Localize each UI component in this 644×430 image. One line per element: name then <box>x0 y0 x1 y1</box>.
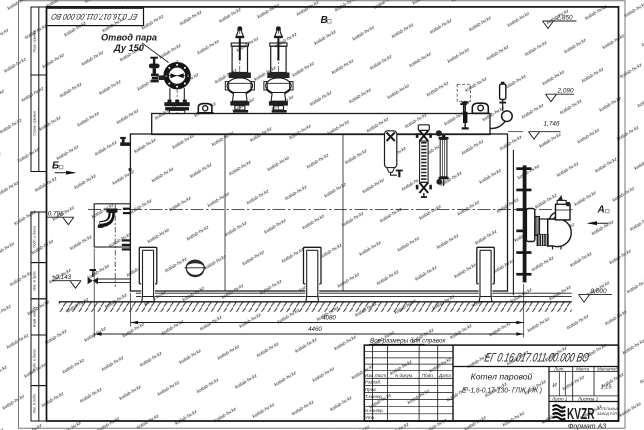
svg-text:Лист: Лист <box>374 373 387 378</box>
svg-text:Т.контр.: Т.контр. <box>365 394 383 399</box>
svg-text:+0,143: +0,143 <box>52 274 72 281</box>
svg-text:Масса: Масса <box>576 366 590 371</box>
svg-text:Справ. примен.: Справ. примен. <box>33 110 37 135</box>
svg-text:Утв.: Утв. <box>365 415 375 420</box>
svg-text:КОТЕЛЬНЫЙ: КОТЕЛЬНЫЙ <box>597 407 620 411</box>
svg-text:Котел паровой: Котел паровой <box>471 372 533 382</box>
svg-text:2,090: 2,090 <box>557 88 574 95</box>
svg-text:Е -1,6-0,17-130- ГЛЖ ( Ж ): Е -1,6-0,17-130- ГЛЖ ( Ж ) <box>462 386 542 395</box>
svg-text:Изм: Изм <box>365 373 373 378</box>
svg-text:Взам. инв. N: Взам. инв. N <box>33 306 37 327</box>
svg-text:KVZR: KVZR <box>567 406 595 423</box>
svg-text:Лит.: Лит. <box>553 366 565 371</box>
svg-text:Инв. N подл.: Инв. N подл. <box>33 393 37 413</box>
svg-text:0,000: 0,000 <box>591 288 607 295</box>
svg-text:Подп.: Подп. <box>422 373 434 378</box>
svg-text:А: А <box>597 205 605 216</box>
svg-text:Дата: Дата <box>438 373 451 378</box>
svg-text:1:15: 1:15 <box>600 385 612 391</box>
svg-text:N докум.: N докум. <box>395 373 413 378</box>
svg-text:1,746: 1,746 <box>544 121 560 128</box>
svg-text:Н.контр.: Н.контр. <box>365 408 384 413</box>
svg-text:-0,796: -0,796 <box>46 211 65 218</box>
svg-text:Инв. N дубл.: Инв. N дубл. <box>33 271 37 291</box>
svg-text:Ду 150: Ду 150 <box>113 43 145 53</box>
svg-text:Разраб.: Разраб. <box>365 380 381 385</box>
svg-text:Масштаб: Масштаб <box>597 366 618 371</box>
svg-text:Лист 1: Лист 1 <box>551 396 568 401</box>
svg-text:4080: 4080 <box>322 315 336 322</box>
svg-text:Подп. и дата: Подп. и дата <box>33 226 37 248</box>
svg-text:Б: Б <box>52 161 59 172</box>
svg-text:Пров.: Пров. <box>365 387 377 392</box>
svg-text:Формат А3: Формат А3 <box>568 423 606 430</box>
svg-text:ЗАВОД РЭП: ЗАВОД РЭП <box>597 412 618 416</box>
svg-text:Перв. примен.: Перв. примен. <box>33 29 37 52</box>
svg-text:Листов 2: Листов 2 <box>577 396 599 401</box>
svg-text:ЕГ 0.16.017.011.00.000 ВО: ЕГ 0.16.017.011.00.000 ВО <box>483 351 590 365</box>
svg-text:Отвод пара: Отвод пара <box>101 33 157 43</box>
svg-text:2,850: 2,850 <box>556 14 573 21</box>
svg-text:ЕГ 0.16.017.011.00.000 ВО: ЕГ 0.16.017.011.00.000 ВО <box>50 12 139 22</box>
svg-text:4460: 4460 <box>308 326 322 333</box>
svg-text:В: В <box>321 15 328 26</box>
svg-text:Подп. и дата: Подп. и дата <box>33 349 37 371</box>
svg-text:Все размеры для справок: Все размеры для справок <box>370 337 446 345</box>
